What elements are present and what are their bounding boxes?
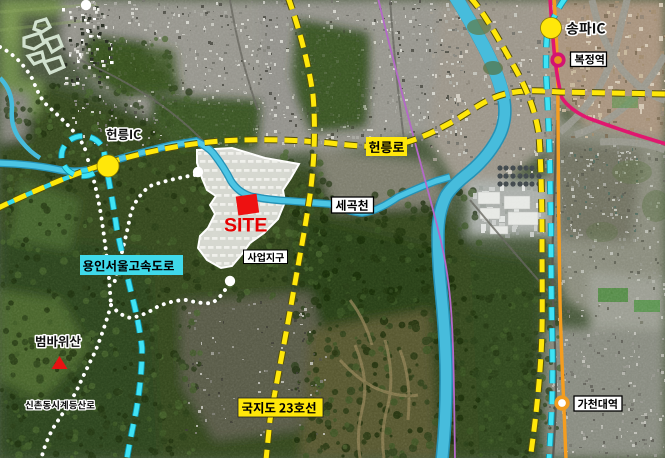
svg-text:SITE: SITE: [224, 215, 267, 237]
